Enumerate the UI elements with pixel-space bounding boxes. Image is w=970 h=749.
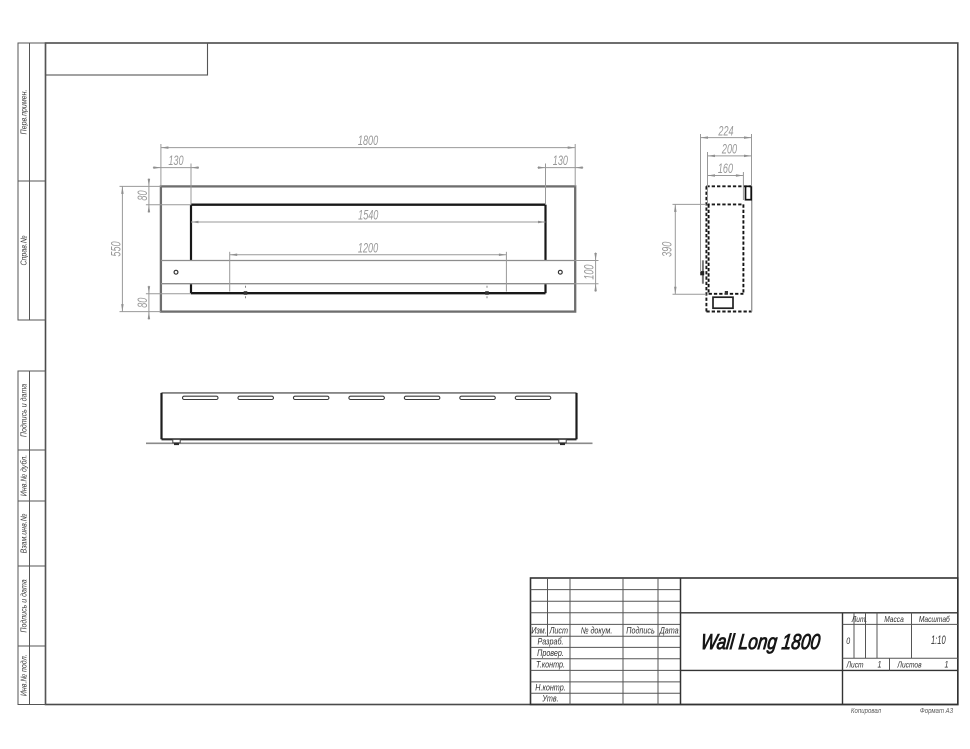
svg-text:Провер.: Провер. <box>537 648 564 658</box>
svg-text:Изм.: Изм. <box>531 626 546 636</box>
svg-text:1540: 1540 <box>358 206 379 223</box>
svg-text:Справ.№: Справ.№ <box>19 235 29 265</box>
svg-text:0: 0 <box>846 636 850 646</box>
svg-text:Разраб.: Разраб. <box>538 637 564 647</box>
svg-text:Дата: Дата <box>659 626 679 636</box>
svg-text:1800: 1800 <box>358 132 379 149</box>
svg-text:Инв.№ подл.: Инв.№ подл. <box>19 654 29 696</box>
svg-text:Т.контр.: Т.контр. <box>536 660 565 670</box>
svg-text:130: 130 <box>168 152 184 169</box>
svg-text:№ докум.: № докум. <box>581 626 613 636</box>
svg-text:100: 100 <box>580 264 597 280</box>
svg-text:1: 1 <box>944 660 948 670</box>
svg-text:Лит.: Лит. <box>851 614 867 624</box>
svg-text:Копировал: Копировал <box>851 707 881 715</box>
svg-text:Масштаб: Масштаб <box>919 614 951 624</box>
svg-text:Лист: Лист <box>549 626 569 636</box>
svg-text:Лист: Лист <box>846 660 864 670</box>
svg-text:Подпись и дата: Подпись и дата <box>19 579 29 633</box>
svg-text:Подпись: Подпись <box>626 626 654 636</box>
svg-text:130: 130 <box>553 152 569 169</box>
svg-text:Взам.инв.№: Взам.инв.№ <box>19 514 29 554</box>
svg-text:80: 80 <box>134 297 151 307</box>
svg-text:Инв.№ дубл.: Инв.№ дубл. <box>19 455 29 496</box>
svg-text:224: 224 <box>718 122 734 139</box>
svg-text:390: 390 <box>658 241 675 257</box>
svg-text:Масса: Масса <box>884 614 904 624</box>
svg-text:Листов: Листов <box>897 660 922 670</box>
svg-text:160: 160 <box>718 160 734 177</box>
svg-text:Подпись и дата: Подпись и дата <box>19 383 29 437</box>
svg-text:200: 200 <box>721 141 737 158</box>
svg-text:Формат А3: Формат А3 <box>920 707 953 715</box>
svg-text:80: 80 <box>134 190 151 200</box>
svg-text:1: 1 <box>877 660 881 670</box>
svg-text:Перв.примен.: Перв.примен. <box>19 90 29 135</box>
svg-text:Утв.: Утв. <box>541 694 558 704</box>
svg-text:Wall Long 1800: Wall Long 1800 <box>700 630 822 654</box>
svg-text:1200: 1200 <box>358 239 379 256</box>
svg-text:Н.контр.: Н.контр. <box>535 683 565 693</box>
svg-text:550: 550 <box>107 241 124 257</box>
svg-text:1:10: 1:10 <box>931 635 946 648</box>
